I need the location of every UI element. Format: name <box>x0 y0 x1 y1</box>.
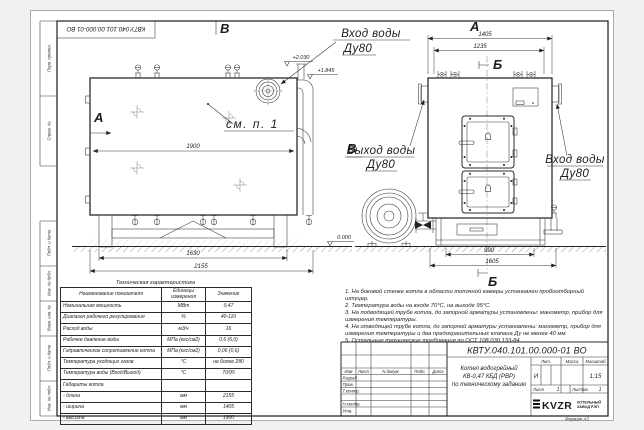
ground-line <box>72 247 606 253</box>
spec-row: Гидравлическое сопротивление котлаМПа (к… <box>61 346 252 357</box>
section-mark-label: Б <box>488 274 497 289</box>
margin-label: Справ. № <box>47 121 52 140</box>
dim-label: 1605 <box>485 259 499 265</box>
pipe-size-label: Ду80 <box>559 168 590 180</box>
spec-cell: мм <box>162 402 206 413</box>
logo-text: KVZR <box>542 400 572 412</box>
spec-cell <box>206 380 252 391</box>
pipe-size-label: Ду80 <box>365 159 396 171</box>
spec-cell: 2155 <box>206 391 252 402</box>
spec-header-row: Наименование показателя Единицы измерени… <box>61 288 252 302</box>
tb-sheets-label: Листов <box>571 387 588 392</box>
spec-row: - длинамм2155 <box>61 391 252 402</box>
tb-lit-value: И <box>534 374 539 380</box>
spec-col-header: Наименование показателя <box>61 288 162 302</box>
note-item: 5. Остальные технические требования по О… <box>345 338 608 345</box>
spec-row: Температура воды (Вход/Выход)°С70/95 <box>61 369 252 380</box>
spec-cell: 1900 <box>206 413 252 424</box>
elevation-label: +1.845 <box>318 68 336 74</box>
spec-cell: 1405 <box>206 402 252 413</box>
spec-cell: 16 <box>206 324 252 335</box>
margin-label: Взам. инв. № <box>47 305 52 331</box>
dim-label: 1900 <box>186 144 200 150</box>
elevation-label: 0.000 <box>337 235 352 241</box>
view-mark-label: В <box>220 21 229 36</box>
spec-table: Техническая характеристика Наименование … <box>60 280 251 425</box>
pipe-label: Выход воды <box>347 145 416 157</box>
spec-row: Температура уходящих газов°Сне более 280 <box>61 357 252 368</box>
spec-row: Рабочее давление водыМПа (кгс/см2)0,6 (6… <box>61 335 252 346</box>
spec-row: Расход водым3/ч16 <box>61 324 252 335</box>
product-title: КВ-0,47 КБД (РВР) <box>463 374 515 380</box>
spec-table-title: Техническая характеристика <box>60 280 251 287</box>
technical-notes: 1. На боковой стенке котла в области топ… <box>345 289 608 345</box>
tb-col-header: Дата <box>431 369 444 374</box>
tb-col-header: Лист <box>357 369 369 374</box>
tb-scale-header: Масштаб <box>585 359 606 364</box>
tb-row-label: Утв. <box>343 409 353 414</box>
spec-cell: - высота <box>61 413 162 424</box>
note-item: 2. Температура воды на входе 70°С, на вы… <box>345 303 608 310</box>
tb-col-header: Изм <box>345 369 353 374</box>
spec-cell: 0,06 (0,6) <box>206 346 252 357</box>
format-label: Формат А3 <box>565 416 589 421</box>
tb-sheet-label: Лист <box>532 387 544 392</box>
spec-cell: 0,47 <box>206 302 252 313</box>
product-title: Котел водогрейный <box>460 365 518 372</box>
section-mark-label: А <box>93 110 103 125</box>
see-note-label: см. п. 1 <box>226 117 279 131</box>
tb-scale-value: 1:15 <box>590 374 602 380</box>
tb-col-header: N докум. <box>382 369 399 374</box>
margin-label: Инв. № подл. <box>47 385 52 411</box>
spec-cell: Гидравлическое сопротивление котла <box>61 346 162 357</box>
pipe-label: Вход воды <box>341 28 401 40</box>
doc-number: КВТУ.040.101.00.000-01 ВО <box>467 346 587 356</box>
margin-label: Подп. и дата <box>47 344 52 371</box>
spec-cell: °С <box>162 369 206 380</box>
tb-sheets-value: 1 <box>599 387 602 393</box>
spec-col-header: Значение <box>206 288 252 302</box>
spec-row: - ширинамм1405 <box>61 402 252 413</box>
margin-label: Перв. примен. <box>47 44 52 72</box>
dim-label: 1235 <box>473 44 487 50</box>
spec-cell: МВт <box>162 302 206 313</box>
spec-cell: - длина <box>61 391 162 402</box>
spec-cell: % <box>162 313 206 324</box>
spec-cell: - ширина <box>61 402 162 413</box>
dim-label: 1405 <box>478 32 492 38</box>
drawing-sheet: Перв. примен. Справ. № Подп. и дата Инв.… <box>0 0 644 430</box>
spec-cell: Номинальная мощность <box>61 302 162 313</box>
spec-cell: 70/95 <box>206 369 252 380</box>
spec-cell: Расход воды <box>61 324 162 335</box>
product-title: по техническому заданию <box>452 382 527 388</box>
margin-label: Подп. и дата <box>47 229 52 256</box>
company-name: КОТЕЛЬНЫЙ <box>577 401 601 405</box>
section-mark-label: Б <box>493 57 502 72</box>
spec-cell: Рабочее давление воды <box>61 335 162 346</box>
tb-mass-header: Масса <box>566 359 579 364</box>
note-item: 4. На отводящей трубе котла, до запорной… <box>345 324 608 337</box>
margin-label: Инв. № дубл. <box>47 270 52 296</box>
spec-cell: 0,6 (6,0) <box>206 335 252 346</box>
elevation-label: +2.030 <box>293 55 311 61</box>
spec-row: Диапазон рабочего регулирования%40-110 <box>61 313 252 324</box>
tb-row-label: Н.контр. <box>343 402 361 407</box>
notes-list: 1. На боковой стенке котла в области топ… <box>345 289 608 345</box>
spec-col-header: Единицы измерения <box>162 288 206 302</box>
tb-col-header: Подп. <box>414 369 425 374</box>
tb-lit-header: Лит. <box>540 359 551 364</box>
spec-cell <box>162 380 206 391</box>
spec-cell: Температура воды (Вход/Выход) <box>61 369 162 380</box>
spec-row: Номинальная мощностьМВт0,47 <box>61 302 252 313</box>
tb-row-label: Т.контр. <box>343 389 360 394</box>
spec-cell: Габариты котла <box>61 380 162 391</box>
tb-sheet-value: 1 <box>557 387 560 393</box>
note-item: 3. На подводящей трубе котла, до запорно… <box>345 310 608 323</box>
spec-row: Габариты котла <box>61 380 252 391</box>
top-stamp-number: КВТУ.040.101.00.000-01 ВО <box>66 25 145 32</box>
spec-cell: МПа (кгс/см2) <box>162 346 206 357</box>
spec-cell: МПа (кгс/см2) <box>162 335 206 346</box>
dim-label: 2155 <box>193 264 208 270</box>
spec-cell: мм <box>162 391 206 402</box>
company-name: ЗАВОД РЭП <box>577 405 599 409</box>
pipe-label: Вход воды <box>545 154 605 166</box>
spec-cell: Температура уходящих газов <box>61 357 162 368</box>
tb-row-label: Разраб. <box>343 376 359 381</box>
spec-cell: °С <box>162 357 206 368</box>
spec-cell: Диапазон рабочего регулирования <box>61 313 162 324</box>
spec-cell: мм <box>162 413 206 424</box>
note-item: 1. На боковой стенке котла в области топ… <box>345 289 608 302</box>
spec-cell: 40-110 <box>206 313 252 324</box>
spec-cell: м3/ч <box>162 324 206 335</box>
spec-table-body: Номинальная мощностьМВт0,47Диапазон рабо… <box>61 302 252 425</box>
pipe-size-label: Ду80 <box>342 43 373 55</box>
spec-cell: не более 280 <box>206 357 252 368</box>
spec-row: - высотамм1900 <box>61 413 252 424</box>
tb-row-label: Пров. <box>343 382 354 387</box>
